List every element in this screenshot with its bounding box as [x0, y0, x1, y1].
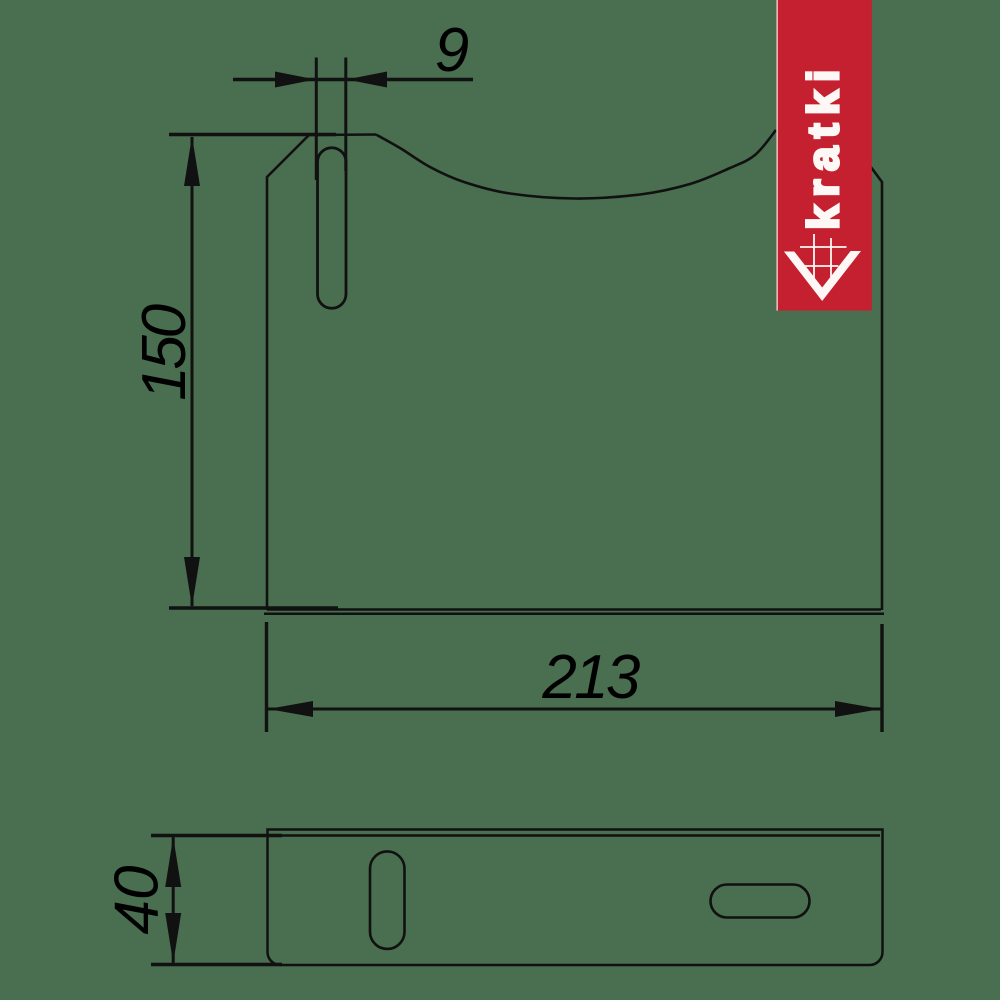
svg-text:150: 150	[130, 304, 199, 400]
svg-text:213: 213	[541, 643, 640, 712]
svg-text:kratki: kratki	[799, 61, 848, 229]
svg-text:9: 9	[435, 16, 469, 85]
svg-text:40: 40	[103, 866, 172, 935]
